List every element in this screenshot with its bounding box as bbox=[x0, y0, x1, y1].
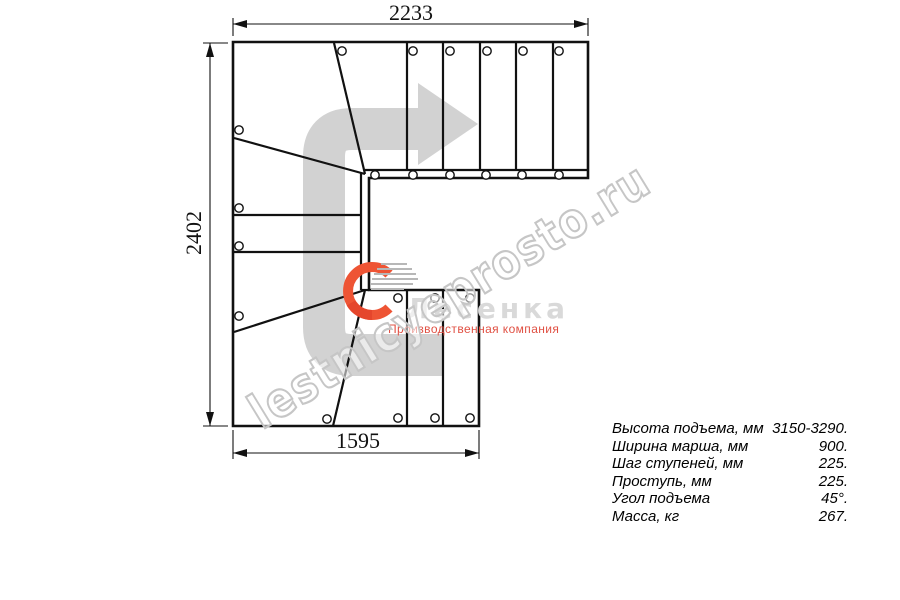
screw-hole bbox=[235, 312, 243, 320]
staircase-drawing-page: 2233 2402 1595 Лесенка Производственная … bbox=[0, 0, 900, 600]
dimension-arrowhead-icon bbox=[233, 20, 247, 28]
watermark-text: lestnicyeprosto.ru bbox=[239, 152, 660, 440]
spec-value: 267. bbox=[819, 508, 848, 526]
spec-label: Высота подъема, мм bbox=[612, 420, 764, 438]
spec-row: Шаг ступеней, мм225. bbox=[612, 455, 848, 473]
dimension-arrowhead-icon bbox=[233, 449, 247, 457]
screw-hole bbox=[555, 47, 563, 55]
screw-hole bbox=[431, 414, 439, 422]
screw-hole bbox=[394, 414, 402, 422]
spec-table: Высота подъема, мм3150-3290.Ширина марша… bbox=[612, 420, 848, 525]
spec-value: 3150-3290. bbox=[772, 420, 848, 438]
screw-hole bbox=[338, 47, 346, 55]
screw-hole bbox=[446, 47, 454, 55]
screw-hole bbox=[518, 171, 526, 179]
screw-hole bbox=[409, 171, 417, 179]
dimension-arrowhead-icon bbox=[206, 412, 214, 426]
route-arrowhead-icon bbox=[418, 83, 478, 165]
spec-row: Проступь, мм225. bbox=[612, 473, 848, 491]
spec-value: 225. bbox=[819, 473, 848, 491]
spec-value: 225. bbox=[819, 455, 848, 473]
screw-hole bbox=[409, 47, 417, 55]
spec-label: Масса, кг bbox=[612, 508, 679, 526]
spec-label: Ширина марша, мм bbox=[612, 438, 748, 456]
screw-hole bbox=[519, 47, 527, 55]
dimension-arrowhead-icon bbox=[574, 20, 588, 28]
spec-row: Угол подъема45°. bbox=[612, 490, 848, 508]
spec-row: Высота подъема, мм3150-3290. bbox=[612, 420, 848, 438]
screw-hole bbox=[482, 171, 490, 179]
dimension-arrowhead-icon bbox=[465, 449, 479, 457]
dim-bottom-value: 1595 bbox=[336, 428, 380, 453]
screw-hole bbox=[235, 242, 243, 250]
screw-hole bbox=[483, 47, 491, 55]
dimension-arrowhead-icon bbox=[206, 43, 214, 57]
spec-value: 45°. bbox=[821, 490, 848, 508]
spec-label: Угол подъема bbox=[612, 490, 710, 508]
spec-value: 900. bbox=[819, 438, 848, 456]
spec-label: Проступь, мм bbox=[612, 473, 712, 491]
spec-label: Шаг ступеней, мм bbox=[612, 455, 743, 473]
screw-hole bbox=[555, 171, 563, 179]
screw-hole bbox=[235, 204, 243, 212]
screw-hole bbox=[446, 171, 454, 179]
spec-row: Ширина марша, мм900. bbox=[612, 438, 848, 456]
screw-hole bbox=[323, 415, 331, 423]
screw-hole bbox=[371, 171, 379, 179]
spec-row: Масса, кг267. bbox=[612, 508, 848, 526]
dim-left-value: 2402 bbox=[181, 211, 206, 255]
screw-hole bbox=[466, 414, 474, 422]
dim-top-value: 2233 bbox=[389, 0, 433, 25]
screw-hole bbox=[235, 126, 243, 134]
